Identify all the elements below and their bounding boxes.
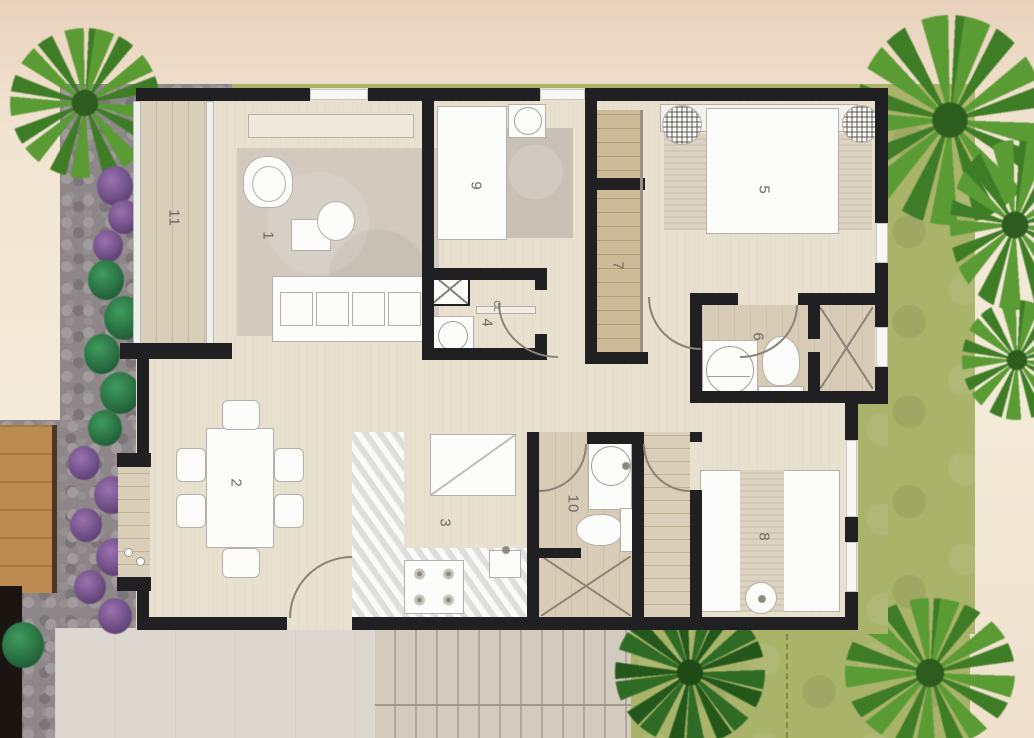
green-bush-icon	[88, 260, 124, 300]
room-label-5: 5	[756, 185, 773, 194]
wall	[690, 432, 702, 442]
wall	[585, 101, 597, 178]
room-label-8: 8	[756, 532, 773, 541]
coffee-table-round	[317, 201, 355, 241]
room-label-7: 7	[610, 261, 627, 270]
wood-deck-steps	[375, 628, 631, 738]
purple-bush-icon	[74, 570, 106, 604]
dining-chair	[176, 494, 206, 528]
room-label-4: 4	[479, 318, 496, 327]
wall	[845, 517, 858, 542]
room-label-3: 3	[437, 518, 454, 527]
property-dashed-line	[786, 634, 790, 738]
side-wood-walk	[0, 425, 57, 593]
wall	[585, 88, 888, 101]
wardrobe-edge	[640, 110, 643, 352]
floor-plan-canvas: 1 2 3 4 CL 5 6 7 8 9 10 11	[0, 0, 1034, 738]
wall	[535, 268, 547, 290]
room-label-11: 11	[166, 209, 183, 227]
wall	[808, 305, 820, 339]
entry-nook-floor	[118, 467, 150, 577]
stove-cooktop	[404, 560, 464, 614]
sofa-cushion	[280, 292, 313, 326]
nightstand-lamp	[514, 107, 542, 135]
closet-tag-label: CL	[492, 300, 502, 312]
sofa-cushion	[388, 292, 421, 326]
wall	[845, 404, 858, 440]
wall	[352, 617, 858, 630]
bed-room9	[437, 106, 507, 240]
washer-door	[438, 321, 468, 351]
dining-chair	[222, 400, 260, 430]
patio-pavement	[55, 628, 377, 738]
wall	[422, 268, 434, 360]
wall	[539, 548, 581, 558]
wall	[137, 617, 287, 630]
wall	[137, 359, 149, 457]
purple-bush-icon	[68, 446, 100, 480]
wall	[422, 101, 434, 269]
wall	[137, 589, 149, 630]
wall	[798, 293, 888, 305]
room-label-9: 9	[468, 181, 485, 190]
deck-seam	[375, 704, 631, 706]
bed-room5	[706, 108, 839, 234]
window	[540, 89, 585, 100]
terrace-living-glass-divider	[206, 101, 214, 345]
room-7-wardrobe	[597, 110, 640, 352]
wall	[120, 343, 232, 359]
nightstand-rattan	[662, 105, 702, 145]
armchair-seat-line	[252, 166, 286, 202]
wall	[808, 352, 820, 391]
purple-bush-icon	[93, 230, 123, 262]
dining-chair	[274, 494, 304, 528]
dining-chair	[222, 548, 260, 578]
room-label-2: 2	[228, 478, 245, 487]
bedroom5-side-runner	[838, 134, 872, 230]
green-bush-icon	[100, 372, 140, 414]
window	[846, 440, 857, 517]
dining-chair	[274, 448, 304, 482]
dining-chair	[176, 448, 206, 482]
room-label-1: 1	[260, 231, 277, 240]
wall	[368, 88, 540, 101]
grass-notch	[858, 404, 888, 634]
bedroom5-side-runner	[664, 134, 706, 230]
wall	[632, 432, 644, 630]
toilet-room10	[576, 514, 622, 546]
window	[310, 89, 368, 100]
wall	[136, 88, 149, 101]
door-hinge-dot	[136, 557, 145, 566]
wall	[136, 88, 310, 101]
window	[876, 223, 888, 263]
green-bush-icon	[2, 622, 44, 668]
door-hinge-dot	[124, 548, 133, 557]
bath6-sink-divider	[708, 376, 750, 377]
wall	[690, 490, 702, 630]
wall	[422, 268, 547, 280]
green-bush-icon	[88, 410, 122, 446]
bath10-faucet	[622, 462, 630, 470]
window	[846, 542, 857, 592]
green-bush-icon	[84, 334, 120, 374]
wall	[585, 352, 648, 364]
bedroom9-rug	[505, 128, 573, 238]
bed8-side-table-dot	[758, 595, 766, 603]
shower-room10	[541, 556, 631, 616]
wall	[117, 453, 151, 467]
sofa-cushion	[316, 292, 349, 326]
purple-bush-icon	[98, 598, 132, 634]
wall	[527, 432, 539, 630]
wall	[587, 432, 633, 444]
shower-room6	[820, 307, 873, 389]
tv-console	[248, 114, 414, 138]
fridge	[430, 434, 516, 496]
room-label-10: 10	[565, 495, 582, 514]
window	[876, 327, 888, 367]
sofa-cushion	[352, 292, 385, 326]
wall	[690, 391, 888, 403]
wall	[875, 101, 888, 223]
dining-table	[206, 428, 274, 548]
room-label-6: 6	[750, 332, 767, 341]
terrace-glass-wall	[133, 101, 141, 345]
purple-bush-icon	[70, 508, 102, 542]
wall	[585, 178, 597, 364]
kitchen-sink	[489, 550, 521, 578]
kitchen-faucet	[502, 546, 510, 554]
